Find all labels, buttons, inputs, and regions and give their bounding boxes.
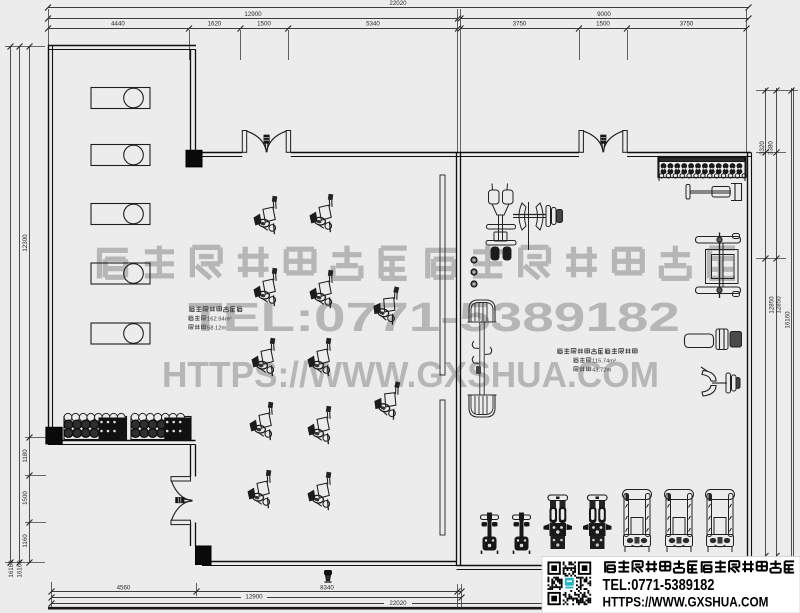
svg-text:TEL:0771-5389182: TEL:0771-5389182 [188,294,680,340]
svg-text:3750: 3750 [680,21,694,28]
svg-text:12900: 12900 [245,594,263,601]
svg-text:162.94m²: 162.94m² [207,317,232,323]
svg-text:3320: 3320 [759,141,766,155]
svg-text:22020: 22020 [389,600,407,607]
svg-text:8340: 8340 [320,585,334,592]
svg-text:1160: 1160 [22,534,29,548]
svg-text:58.12m: 58.12m [207,326,227,332]
svg-text:1500: 1500 [596,21,610,28]
svg-text:12300: 12300 [22,234,29,252]
svg-text:16160: 16160 [17,560,24,578]
svg-text:43.72m: 43.72m [592,368,612,374]
svg-text:4440: 4440 [111,21,125,28]
svg-text:5340: 5340 [366,21,380,28]
svg-text:TEL:0771-5389182: TEL:0771-5389182 [603,577,715,594]
svg-text:16160: 16160 [8,560,15,578]
svg-text:115.74m²: 115.74m² [592,359,616,365]
svg-text:12850: 12850 [776,296,783,314]
svg-text:4560: 4560 [117,585,131,592]
svg-text:12850: 12850 [769,296,776,314]
svg-text:1180: 1180 [22,449,29,463]
svg-text:HTTPS://WWW.GXSHUA.COM: HTTPS://WWW.GXSHUA.COM [603,594,769,609]
svg-text:3380: 3380 [768,141,775,155]
svg-text:3750: 3750 [513,21,527,28]
svg-text:12900: 12900 [244,11,262,18]
svg-text:9000: 9000 [597,11,611,18]
svg-text:16160: 16160 [785,311,792,329]
svg-text:1500: 1500 [22,491,29,505]
svg-text:1620: 1620 [208,21,222,28]
svg-text:1500: 1500 [257,21,271,28]
svg-text:22020: 22020 [389,0,407,7]
